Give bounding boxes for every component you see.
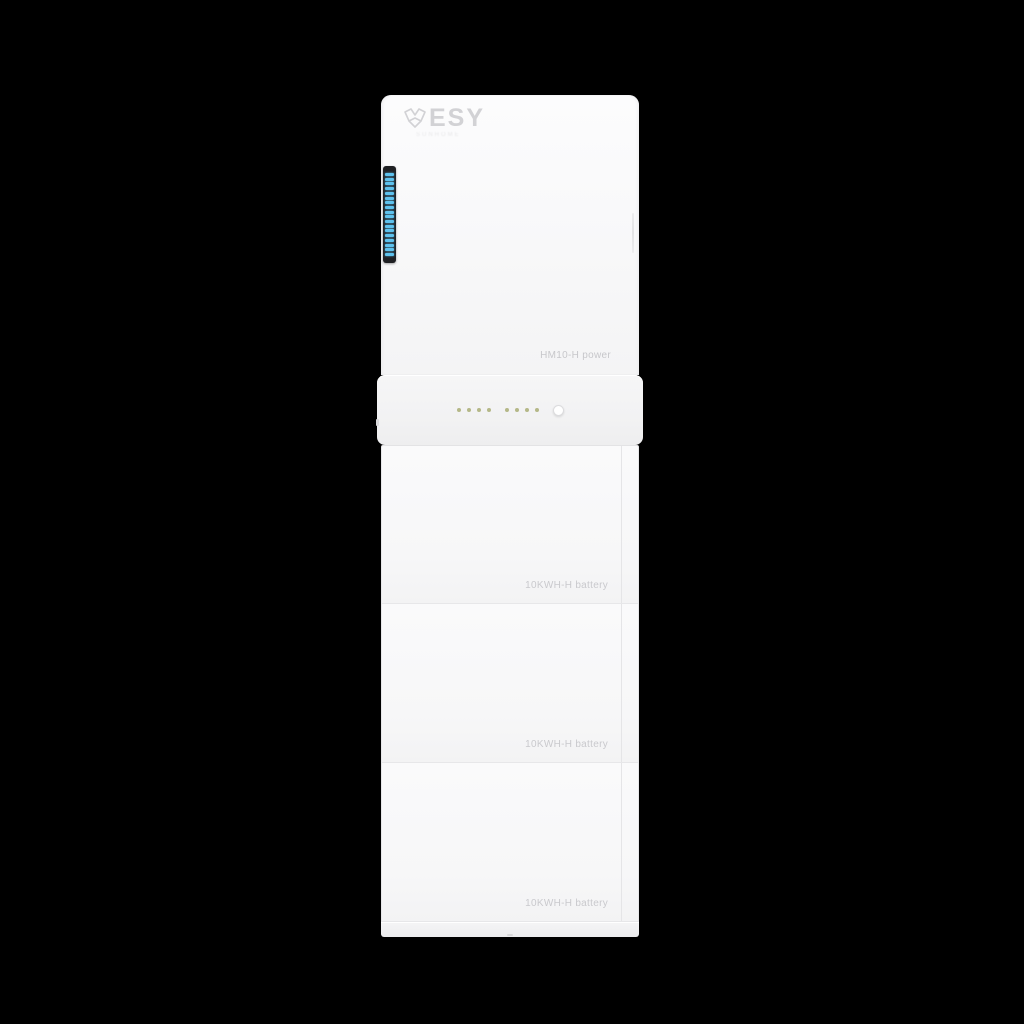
battery-edge-seam [621, 604, 622, 762]
led-segment [505, 408, 509, 412]
led-segment [385, 244, 394, 247]
brand-logo-text: ESY [429, 107, 485, 129]
control-band-panel [377, 375, 643, 445]
battery-module-3: 10KWH-H battery [381, 763, 639, 922]
led-segment [487, 408, 491, 412]
battery-label: 10KWH-H battery [525, 898, 608, 909]
led-segment [385, 229, 394, 232]
status-led-group-1 [457, 408, 491, 412]
led-segment [385, 211, 394, 214]
status-led-group-2 [505, 408, 539, 412]
led-segment [525, 408, 529, 412]
led-segment [457, 408, 461, 412]
led-segment [385, 187, 394, 190]
battery-label: 10KWH-H battery [525, 739, 608, 750]
led-segment [535, 408, 539, 412]
led-segment [385, 225, 394, 228]
led-segment [385, 248, 394, 251]
led-segment [385, 178, 394, 181]
battery-module-1: 10KWH-H battery [381, 445, 639, 604]
esy-logo-icon [403, 107, 427, 129]
battery-label: 10KWH-H battery [525, 580, 608, 591]
battery-edge-seam [621, 763, 622, 921]
led-segment [385, 182, 394, 185]
battery-module-2: 10KWH-H battery [381, 604, 639, 763]
base-notch [507, 934, 513, 936]
led-segment [385, 173, 394, 176]
energy-storage-unit: ESY SUNHOME HM10-H power 10KWH-H battery… [381, 95, 639, 937]
brand-tagline: SUNHOME [416, 132, 461, 138]
brand-logo: ESY [403, 107, 485, 129]
unit-base [381, 922, 639, 937]
led-segment [385, 220, 394, 223]
power-module-label: HM10-H power [540, 350, 611, 361]
led-segment [385, 253, 394, 256]
led-level-strip [383, 166, 396, 263]
band-side-clip [376, 419, 379, 426]
led-segment [467, 408, 471, 412]
black-backdrop: ESY SUNHOME HM10-H power 10KWH-H battery… [0, 0, 1024, 1024]
led-segment [385, 239, 394, 242]
battery-edge-seam [621, 446, 622, 603]
led-segment [385, 197, 394, 200]
led-segment [385, 206, 394, 209]
power-button[interactable] [553, 405, 564, 416]
side-handle-seam [632, 213, 634, 253]
led-segment [385, 201, 394, 204]
led-segment [385, 215, 394, 218]
power-module-panel: ESY SUNHOME HM10-H power [381, 95, 639, 375]
led-segment [515, 408, 519, 412]
status-indicator-row [377, 404, 643, 416]
led-segment [477, 408, 481, 412]
led-segment [385, 192, 394, 195]
led-segment [385, 234, 394, 237]
